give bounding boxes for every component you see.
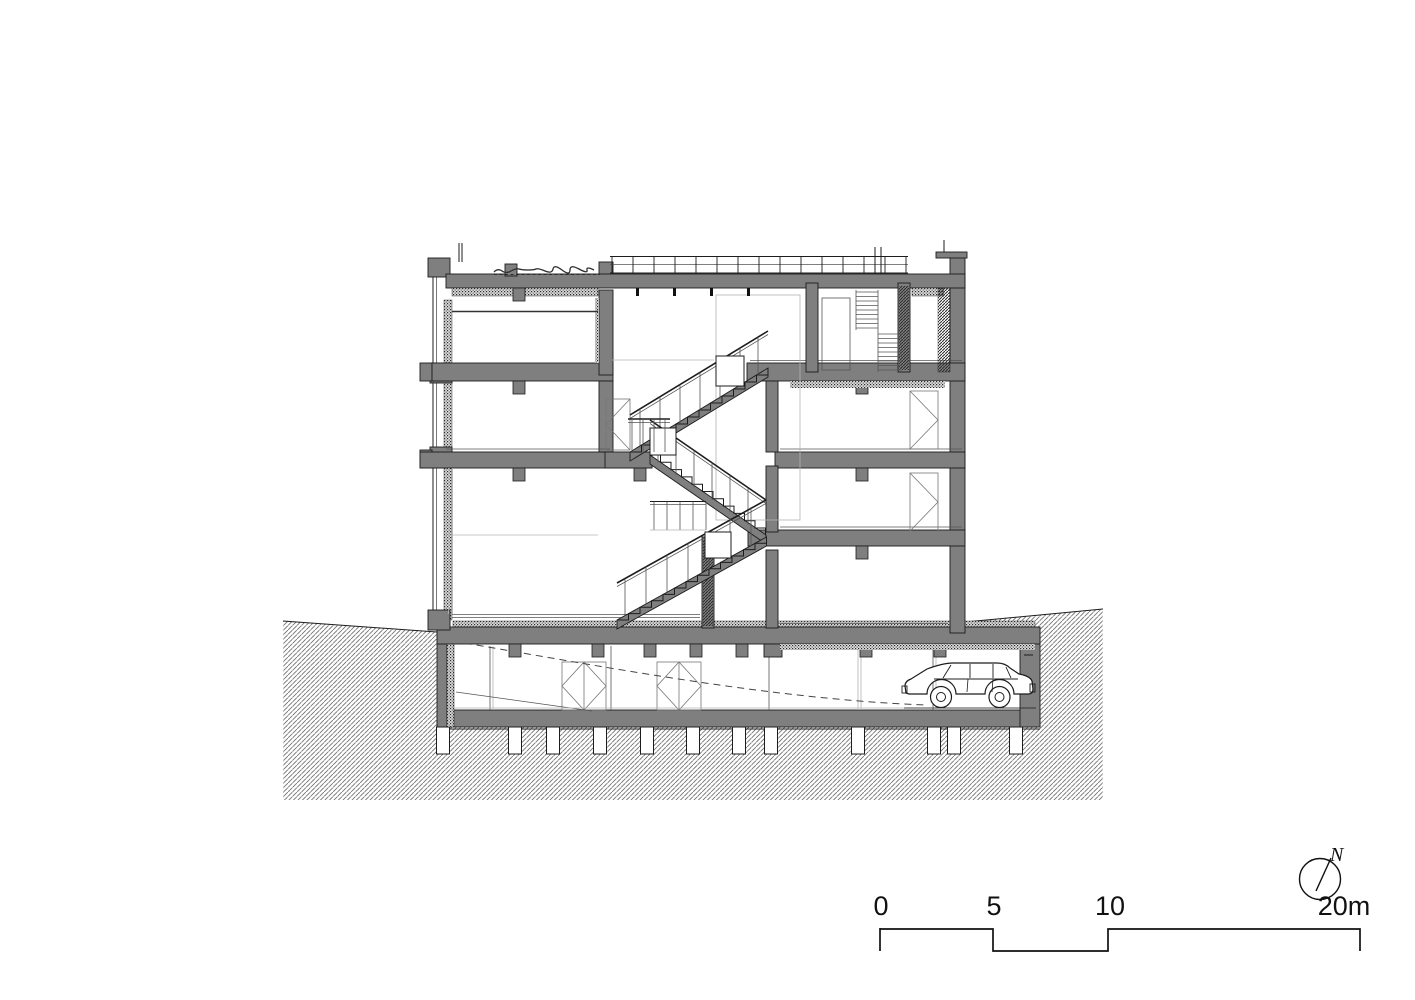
left-exterior-wall xyxy=(420,243,462,630)
storage-box xyxy=(657,662,701,710)
mid-guardrail xyxy=(650,502,706,531)
bulkhead-stair-treads xyxy=(856,290,902,372)
stair-flight-middle xyxy=(650,420,766,544)
door-elevation-symbol xyxy=(910,391,938,449)
left-wing xyxy=(420,243,652,630)
roof-terrace-railing xyxy=(610,247,908,274)
door-elevation-symbol xyxy=(910,473,938,531)
ground-floor-slab xyxy=(437,615,1040,658)
scale-tick-5: 5 xyxy=(986,891,1001,921)
roof-slab xyxy=(446,274,965,288)
section-drawing: 0 5 10 20m N xyxy=(0,0,1415,1000)
top-right-room xyxy=(912,288,950,372)
car xyxy=(902,663,1036,708)
scale-bar: 0 5 10 20m xyxy=(873,891,1370,951)
north-label: N xyxy=(1329,844,1345,866)
scale-tick-10: 10 xyxy=(1095,891,1125,921)
basement-wall-left xyxy=(437,630,447,727)
stair-bulkhead xyxy=(806,283,910,372)
architectural-section-sheet: 0 5 10 20m N xyxy=(0,0,1415,1000)
scale-tick-0: 0 xyxy=(873,891,888,921)
basement-floor-slab xyxy=(437,710,1040,727)
storage-box xyxy=(562,662,606,710)
right-wing xyxy=(702,240,967,633)
scale-tick-20m: 20m xyxy=(1318,891,1371,921)
right-exterior-wall xyxy=(950,255,965,633)
stair-landing xyxy=(605,452,652,468)
roof xyxy=(446,247,965,372)
